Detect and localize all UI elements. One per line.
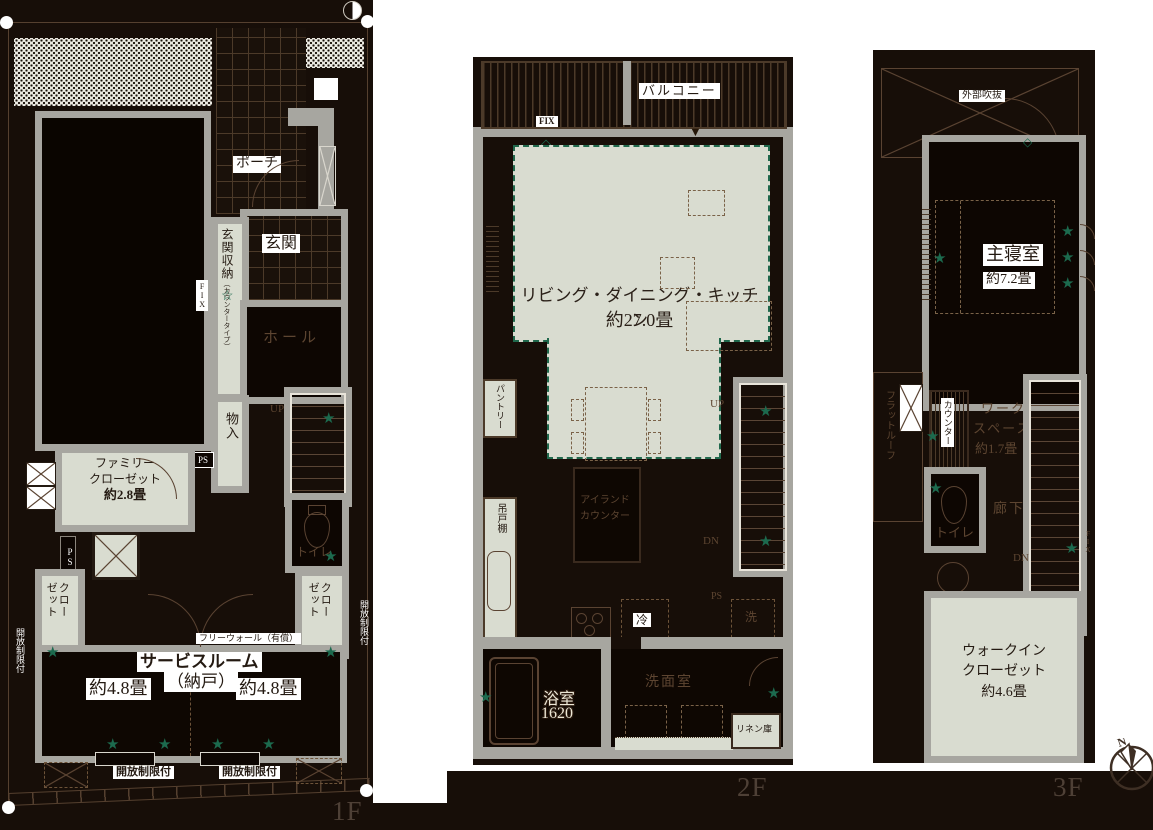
label-closet: クローゼット	[45, 582, 69, 618]
compass-icon: N	[1102, 738, 1153, 796]
star-icon: ★	[46, 646, 59, 661]
floor-plan-1f: ポーチ 玄関 玄関収納（カウンタータイプ） ☆ FIX ホール UP ★ 物入 …	[0, 0, 373, 830]
louver-window	[486, 222, 499, 292]
boundary-marker	[2, 801, 15, 814]
label-linen: リネン庫	[731, 722, 777, 735]
boundary-left	[8, 22, 9, 808]
wall	[473, 127, 483, 755]
window-arc	[1080, 224, 1095, 239]
bottom-band-notch	[373, 803, 447, 830]
floor-plan-3f: 外部吹抜 ◇ 主寝室 約7.2畳 ★ ★ ★ ★ フラットルーフ カウンター ★…	[873, 50, 1095, 763]
label-storage: 物入	[222, 412, 241, 440]
label-toilet-3f: トイレ	[935, 526, 974, 541]
label-ps-2f: PS	[711, 591, 722, 603]
x-panel-window	[26, 462, 56, 486]
label-flat-roof: フラットルーフ	[883, 390, 895, 460]
floor-label-2f: 2F	[737, 772, 768, 803]
bottom-band	[447, 771, 1153, 830]
label-workspace-size: 約1.7畳	[975, 442, 1017, 457]
label-dn-2f: DN	[703, 535, 719, 548]
dining-chair	[571, 399, 584, 421]
star-icon: ★	[929, 482, 942, 497]
label-balcony: バルコニー	[639, 83, 720, 99]
parking-box	[296, 758, 342, 784]
label-workspace-line2: スペース	[973, 422, 1031, 437]
bathtub	[489, 657, 539, 745]
kitchen-counter-outline	[686, 301, 772, 351]
star-icon: ★	[262, 738, 275, 753]
star-icon: ★	[324, 646, 337, 661]
label-pantry: パントリー	[494, 384, 507, 429]
door-gap	[611, 637, 641, 649]
star-icon: ★	[767, 687, 780, 702]
label-entrance-storage: 玄関収納（カウンタータイプ）	[219, 228, 236, 388]
room-garage	[42, 118, 204, 444]
star-outline-icon: ☆	[221, 290, 234, 304]
label-service-size-left: 約4.8畳	[86, 678, 151, 700]
label-hallway: 廊下	[993, 502, 1025, 518]
boundary-marker	[0, 16, 13, 29]
label-fix-2f: FIX	[536, 116, 558, 127]
label-island-line2: カウンター	[577, 511, 633, 523]
x-panel-window	[26, 486, 56, 510]
label-closet: クローゼット	[307, 582, 331, 618]
elevator-shaft	[92, 532, 140, 580]
floor-label-1f: 1F	[332, 796, 363, 827]
label-fix-1f: FIX	[196, 280, 208, 311]
ps-box: PS	[192, 452, 214, 468]
label-open-limit-left: 開放制限付	[14, 628, 27, 673]
gravel-texture	[306, 38, 364, 68]
label-open-limit: 開放制限付	[219, 766, 280, 779]
label-hanging-cupboard: 吊戸棚	[493, 503, 508, 533]
star-icon: ★	[1065, 542, 1078, 557]
label-entrance: 玄関	[262, 234, 300, 253]
kitchen-sink	[487, 551, 511, 611]
label-workspace-line1: ワーク	[981, 402, 1026, 417]
star-icon: ★	[211, 738, 224, 753]
star-icon: ★	[759, 405, 772, 420]
window	[312, 76, 340, 102]
gravel-texture	[14, 38, 212, 106]
vanity-unit	[625, 705, 667, 739]
window-arc	[1080, 276, 1095, 291]
room-closet-right: クローゼット	[302, 576, 342, 652]
star-icon: ★	[324, 550, 337, 565]
label-island-line1: アイランド	[577, 495, 633, 507]
balcony-divider	[623, 61, 631, 125]
entry-triangle-icon: ▼	[689, 125, 702, 138]
dining-chair	[648, 432, 661, 454]
door-arc	[148, 594, 201, 647]
star-icon: ★	[479, 691, 492, 706]
window-arc	[1080, 250, 1095, 265]
room-entrance	[247, 216, 341, 300]
label-fix-3f: FIX	[1084, 530, 1092, 554]
boundary-marker	[361, 15, 374, 28]
kitchen-counter-outline	[688, 190, 725, 216]
star-icon: ★	[106, 738, 119, 753]
boundary-top	[8, 22, 368, 23]
toilet-tank	[308, 505, 326, 515]
storage-strip: 物入	[218, 402, 242, 486]
label-open-limit-right: 開放制限付	[358, 600, 371, 645]
x-panel-window	[319, 146, 336, 206]
label-open-limit: 開放制限付	[113, 766, 174, 779]
parking-box	[44, 762, 88, 788]
wall	[601, 649, 611, 749]
stairs-1f	[290, 393, 346, 501]
star-icon: ★	[759, 535, 772, 550]
label-bedroom: 主寝室	[983, 244, 1043, 266]
star-icon: ★	[1061, 251, 1074, 266]
balcony-deck	[481, 61, 787, 129]
label-counter: カウンター	[941, 398, 954, 447]
label-outer-void: 外部吹抜	[959, 90, 1005, 102]
label-up-1f: UP	[270, 403, 284, 416]
entrance-storage-strip: 玄関収納（カウンタータイプ）	[218, 224, 242, 394]
vanity-unit	[681, 705, 723, 739]
label-hall: ホール	[263, 330, 320, 347]
label-dn-3f: DN	[1013, 552, 1029, 565]
label-up-2f: UP	[710, 398, 724, 411]
floorplan-canvas: ポーチ 玄関 玄関収納（カウンタータイプ） ☆ FIX ホール UP ★ 物入 …	[0, 0, 1153, 830]
diamond-icon: ◇	[1023, 136, 1032, 148]
star-icon: ★	[926, 430, 939, 445]
pantry-strip: パントリー	[483, 379, 517, 438]
window-open-limit	[95, 752, 155, 766]
dining-chair	[571, 432, 584, 454]
star-icon: ★	[158, 738, 171, 753]
room-closet-left: クローゼット	[42, 576, 78, 652]
label-washer: 洗	[745, 611, 757, 625]
stove	[571, 607, 611, 639]
label-service-room-sub: （納戸）	[164, 672, 238, 692]
label-service-size-right: 約4.8畳	[236, 678, 301, 700]
label-bath-size: 1620	[541, 705, 573, 723]
ps-vertical: PS	[60, 536, 76, 578]
vanity-counter	[615, 737, 733, 750]
boundary-right	[367, 22, 368, 790]
label-washroom: 洗面室	[645, 675, 693, 691]
dining-chair	[648, 399, 661, 421]
window-open-limit	[200, 752, 260, 766]
utility-pole-icon	[343, 1, 362, 20]
wash-basin	[937, 562, 969, 594]
label-bedroom-size: 約7.2畳	[983, 272, 1035, 289]
star-icon: ★	[933, 252, 946, 267]
floor-plan-2f: バルコニー FIX ◇ ▼ ◇ リビング・ダイニング・キッチン 約27.0畳 パ…	[473, 57, 793, 765]
label-free-wall: フリーウォール（有償）	[196, 633, 301, 644]
room-hall	[247, 307, 341, 397]
star-icon: ★	[322, 412, 335, 427]
hanging-cupboard-strip: 吊戸棚	[483, 497, 517, 653]
star-icon: ★	[1061, 225, 1074, 240]
stairs-3f	[1029, 380, 1081, 630]
floor-label-3f: 3F	[1053, 772, 1084, 803]
label-fridge: 冷	[633, 613, 651, 627]
label-wic: ウォークイン クローゼット 約4.6畳	[931, 642, 1077, 703]
kitchen-counter-outline	[660, 257, 695, 289]
wall	[288, 108, 334, 126]
label-service-room: サービスルーム	[137, 652, 262, 672]
star-icon: ★	[1061, 277, 1074, 292]
dining-table	[585, 387, 647, 461]
x-panel	[899, 384, 923, 432]
louver-window	[922, 205, 931, 300]
